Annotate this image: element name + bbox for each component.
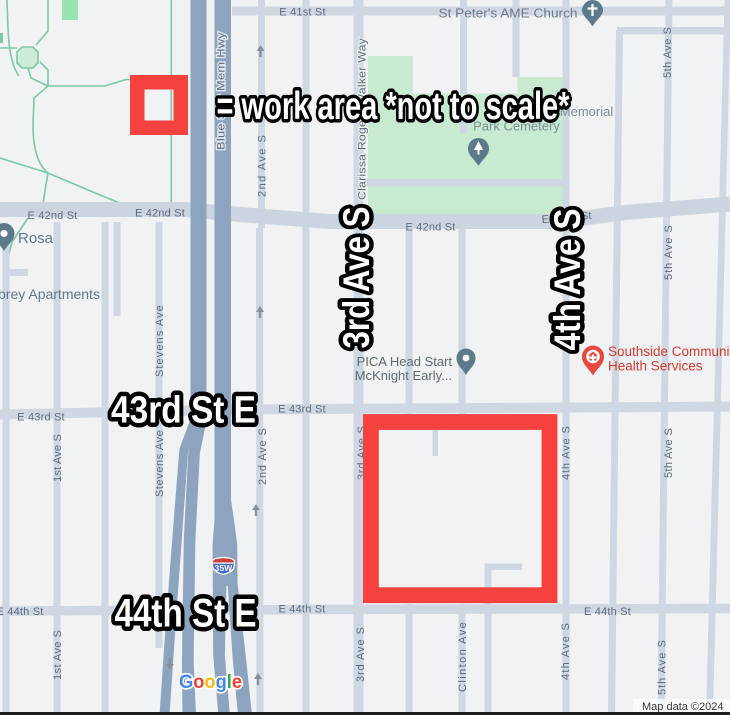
svg-text:Map data ©2024: Map data ©2024: [642, 701, 724, 713]
svg-text:35W: 35W: [215, 564, 233, 573]
svg-text:Rosa: Rosa: [18, 230, 54, 247]
svg-text:E 44th St: E 44th St: [584, 606, 631, 618]
svg-text:2nd Ave S: 2nd Ave S: [257, 135, 269, 197]
svg-text:44th St E: 44th St E: [115, 592, 257, 636]
svg-text:3rd Ave S: 3rd Ave S: [355, 627, 367, 682]
svg-text:= work area *not to scale*: = work area *not to scale*: [217, 85, 570, 128]
svg-text:E 41st St: E 41st St: [279, 7, 325, 19]
svg-text:4th Ave S: 4th Ave S: [547, 209, 588, 351]
svg-text:Health Services: Health Services: [608, 359, 703, 374]
svg-text:St Peter's AME Church: St Peter's AME Church: [439, 6, 578, 21]
svg-text:Stevens Ave: Stevens Ave: [154, 430, 166, 497]
svg-text:5th Ave S: 5th Ave S: [663, 428, 675, 478]
svg-text:E 44th St: E 44th St: [0, 606, 44, 618]
svg-text:E 42nd St: E 42nd St: [27, 210, 77, 222]
svg-text:5th Ave S: 5th Ave S: [662, 27, 674, 78]
svg-text:3rd Ave S: 3rd Ave S: [336, 207, 377, 349]
svg-text:E 42nd St: E 42nd St: [135, 208, 185, 220]
svg-text:Google: Google: [179, 672, 242, 693]
svg-text:4th Ave S: 4th Ave S: [561, 426, 573, 480]
svg-text:brey Apartments: brey Apartments: [0, 286, 100, 302]
svg-text:E 43rd St: E 43rd St: [17, 412, 65, 424]
svg-text:Stevens Ave: Stevens Ave: [154, 305, 166, 377]
svg-text:5th Ave S: 5th Ave S: [663, 225, 675, 280]
svg-text:Clinton Ave: Clinton Ave: [457, 622, 469, 692]
svg-text:5th Ave S: 5th Ave S: [657, 640, 669, 695]
svg-text:E 44th St: E 44th St: [278, 604, 325, 616]
svg-text:PICA Head Start: PICA Head Start: [357, 354, 453, 369]
svg-text:E 42nd St: E 42nd St: [405, 222, 455, 234]
svg-text:2nd Ave S: 2nd Ave S: [257, 428, 269, 485]
svg-text:1st Ave S: 1st Ave S: [52, 630, 64, 680]
svg-text:43rd St E: 43rd St E: [111, 390, 256, 432]
svg-text:McKnight Early...: McKnight Early...: [355, 368, 452, 383]
svg-text:Southside Communit: Southside Communit: [608, 344, 730, 359]
svg-text:1st Ave S: 1st Ave S: [52, 434, 64, 482]
svg-text:E 43rd St: E 43rd St: [278, 404, 326, 416]
